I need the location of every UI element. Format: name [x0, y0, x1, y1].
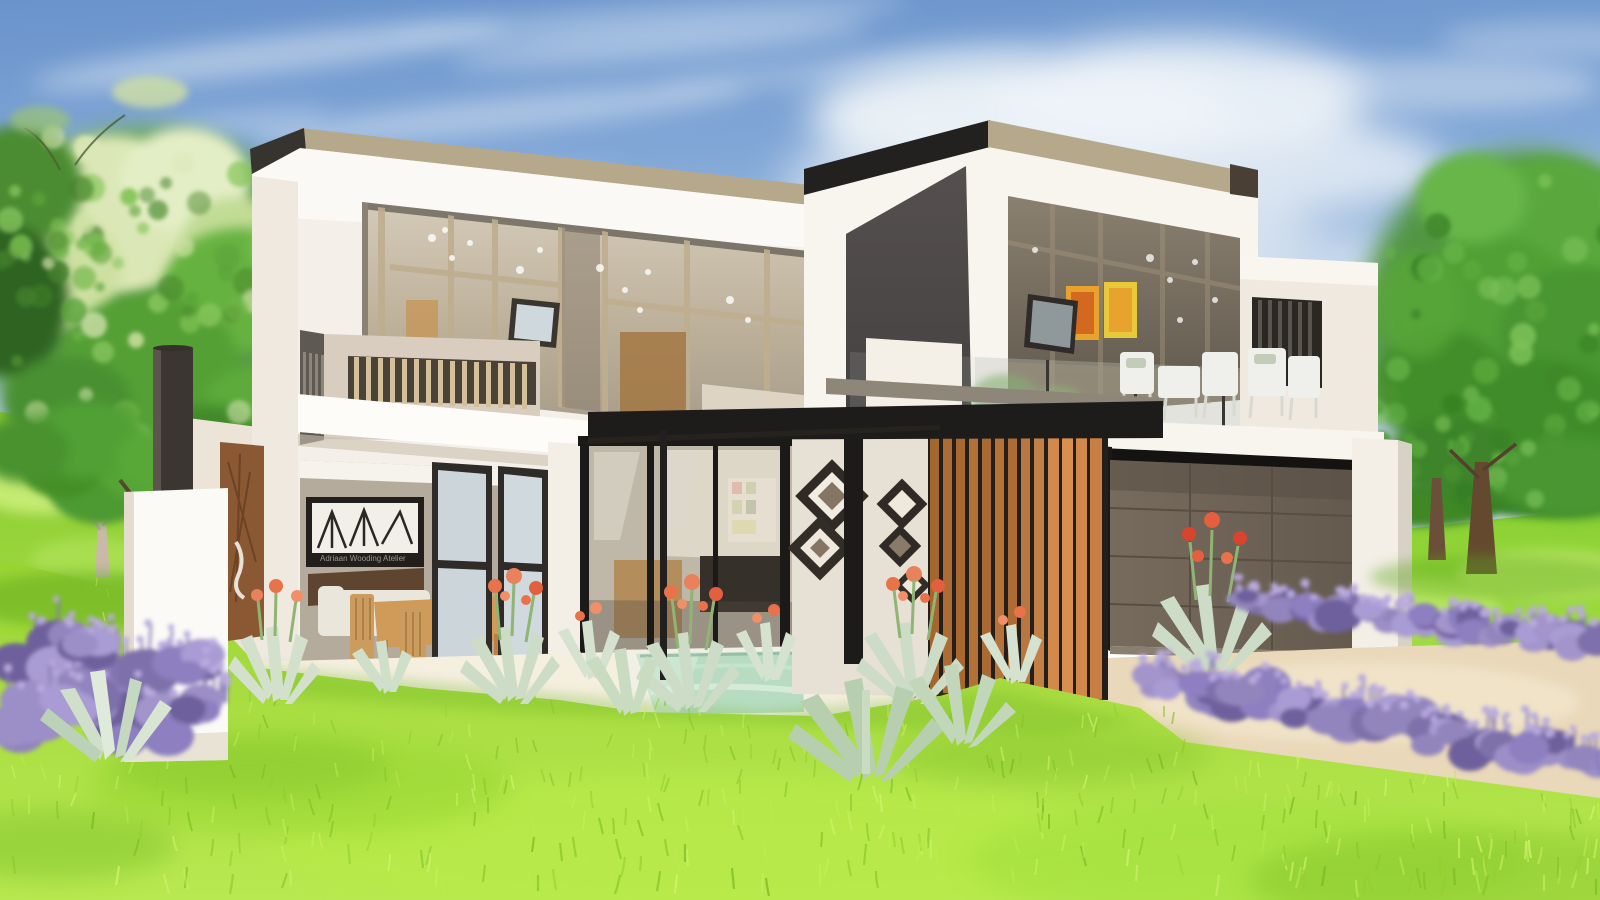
svg-text:Adriaan Wooding Atelier: Adriaan Wooding Atelier: [320, 554, 406, 563]
